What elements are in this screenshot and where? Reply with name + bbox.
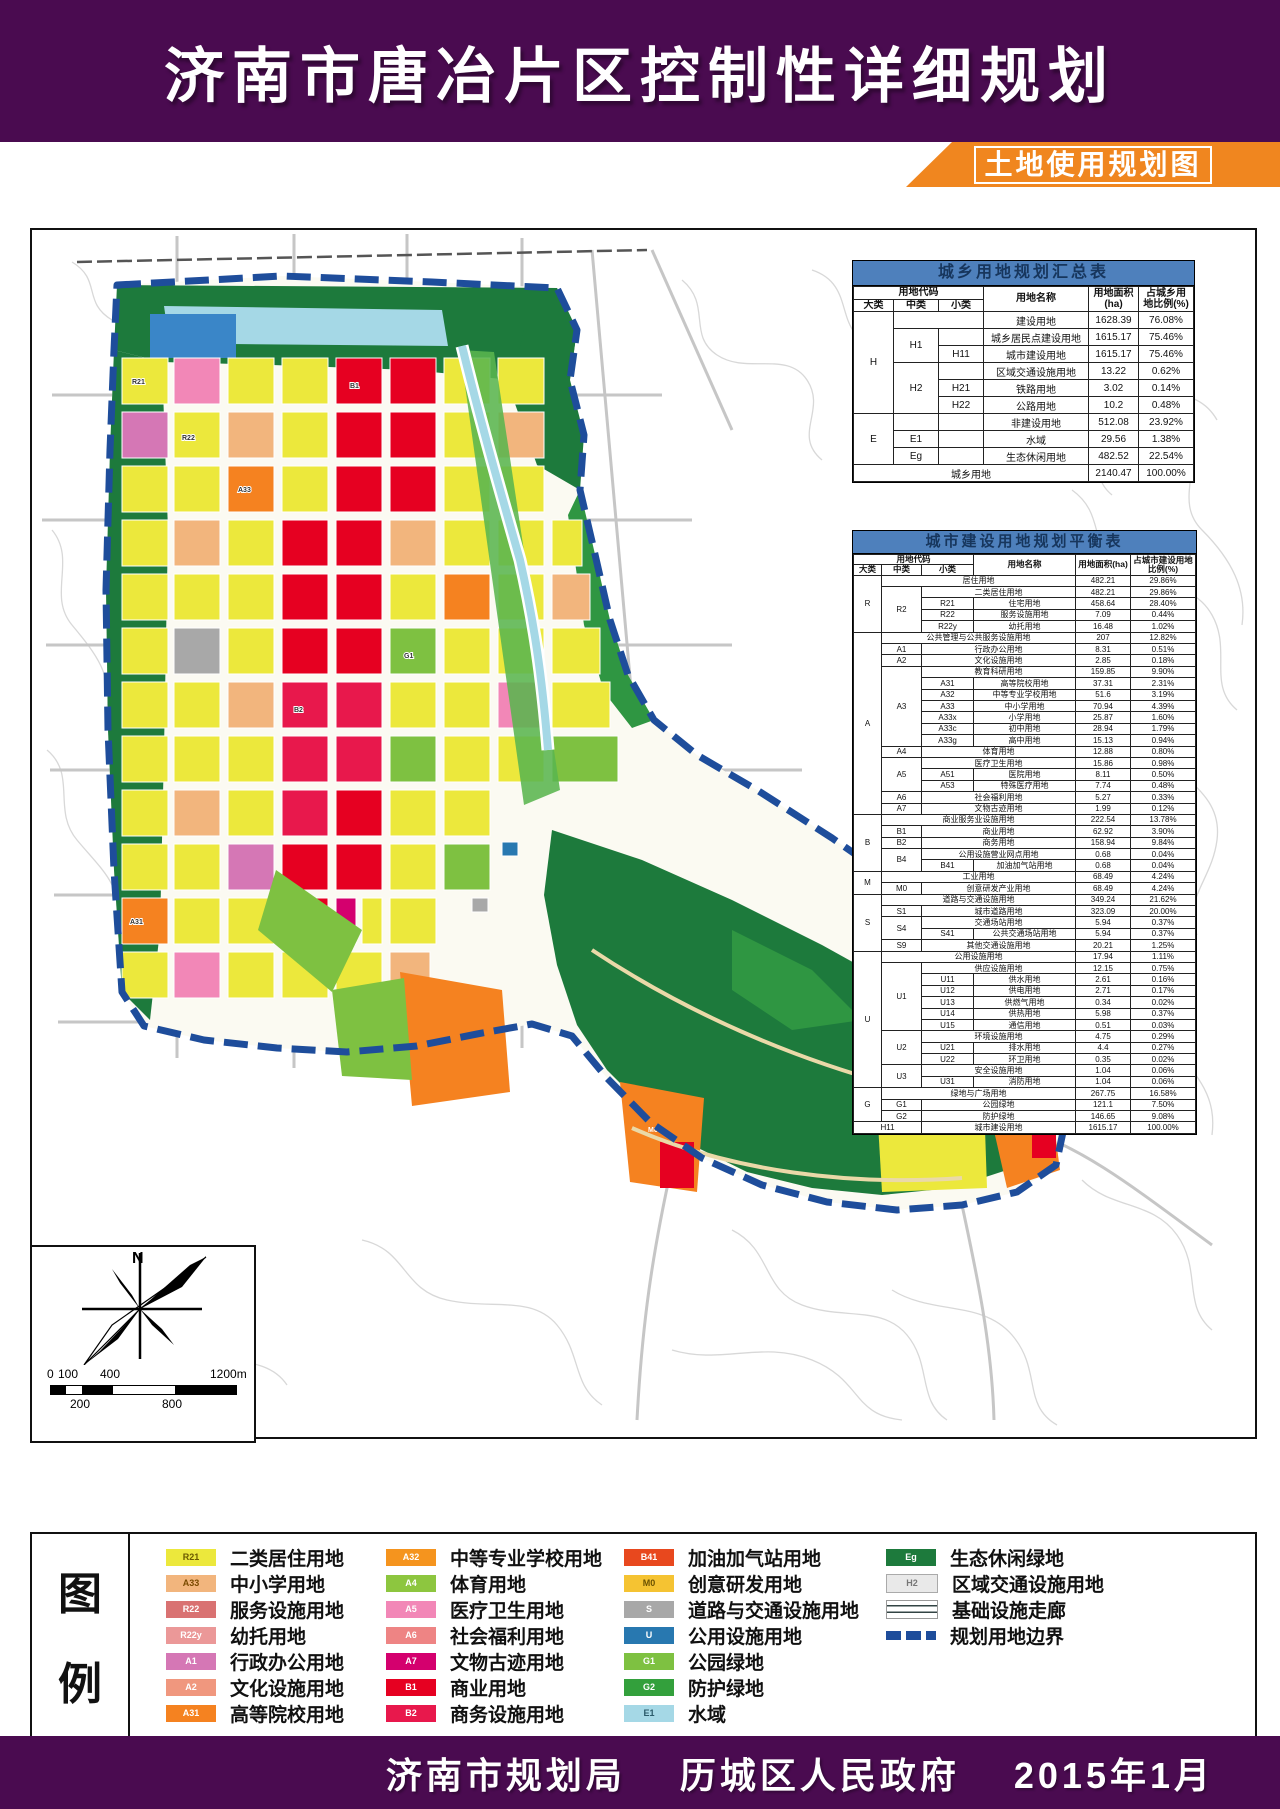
table-row: A2文化设施用地2.850.18% (854, 655, 1196, 666)
table-row: U2环境设施用地4.750.29% (854, 1031, 1196, 1042)
legend-item: H2区域交通设施用地 (886, 1572, 1186, 1594)
legend-item: A5医疗卫生用地 (386, 1598, 624, 1620)
table-row: G2防护绿地146.659.08% (854, 1111, 1196, 1122)
table-row: E1水域29.561.38% (854, 431, 1194, 448)
table-row: H1城乡居民点建设用地1615.1775.46% (854, 329, 1194, 346)
legend-label: 行政办公用地 (230, 1648, 344, 1675)
legend-label: 体育用地 (450, 1570, 526, 1597)
legend-item: A4体育用地 (386, 1572, 624, 1594)
legend-label: 商务设施用地 (450, 1700, 564, 1727)
legend-column: R21二类居住用地 A33中小学用地 R22服务设施用地 R22y幼托用地 A1… (166, 1546, 386, 1728)
legend-swatch: A33 (166, 1575, 216, 1592)
legend-item: R22y幼托用地 (166, 1624, 386, 1646)
legend-item: A32中等专业学校用地 (386, 1546, 624, 1568)
table-row: G1公园绿地121.17.50% (854, 1099, 1196, 1110)
legend-swatch: U (624, 1627, 674, 1644)
svg-text:N: N (132, 1250, 144, 1267)
table-row: 城乡用地2140.47100.00% (854, 465, 1194, 482)
legend-item: E1水域 (624, 1702, 886, 1724)
table-row: A7文物古迹用地1.990.12% (854, 803, 1196, 814)
legend-swatch: A2 (166, 1679, 216, 1696)
table-row: M0创意研发产业用地68.494.24% (854, 883, 1196, 894)
legend-swatch: A5 (386, 1601, 436, 1618)
table-row: R居住用地482.2129.86% (854, 575, 1196, 586)
table-row: G绿地与广场用地267.7516.58% (854, 1088, 1196, 1099)
legend-label: 加油加气站用地 (688, 1544, 821, 1571)
legend-label: 幼托用地 (230, 1622, 306, 1649)
svg-text:R22: R22 (182, 435, 195, 442)
legend-swatch: G2 (624, 1679, 674, 1696)
footer-banner: 济南市规划局 历城区人民政府 2015年1月 (0, 1736, 1280, 1809)
table-row: 用地代码 用地名称 用地面积(ha) 占城市建设用地比例(%) (854, 555, 1196, 565)
legend-label: 商业用地 (450, 1674, 526, 1701)
legend-swatch: R21 (166, 1549, 216, 1566)
svg-text:B2: B2 (294, 707, 303, 714)
table-row: M工业用地68.494.24% (854, 871, 1196, 882)
legend-swatch: R22 (166, 1601, 216, 1618)
legend-swatch: A7 (386, 1653, 436, 1670)
table-row: B商业服务业设施用地222.5413.78% (854, 814, 1196, 825)
legend-label: 生态休闲绿地 (950, 1544, 1064, 1571)
scale-tick-label: 400 (100, 1367, 120, 1381)
railway-line (77, 250, 647, 262)
legend-item: A31高等院校用地 (166, 1702, 386, 1724)
legend-item: A1行政办公用地 (166, 1650, 386, 1672)
legend-item: B41加油加气站用地 (624, 1546, 886, 1568)
svg-text:G1: G1 (404, 653, 413, 660)
legend-box: 图 例 R21二类居住用地 A33中小学用地 R22服务设施用地 R22y幼托用… (30, 1532, 1257, 1738)
page-title: 济南市唐冶片区控制性详细规划 (164, 28, 1116, 115)
legend-item: A33中小学用地 (166, 1572, 386, 1594)
legend-item: A7文物古迹用地 (386, 1650, 624, 1672)
legend-item: B1商业用地 (386, 1676, 624, 1698)
table-row: B4公用设施营业网点用地0.680.04% (854, 849, 1196, 860)
legend-column: B41加油加气站用地 M0创意研发用地 S道路与交通设施用地 U公用设施用地 G… (624, 1546, 886, 1728)
legend-item: U公用设施用地 (624, 1624, 886, 1646)
table-row: S9其他交通设施用地20.211.25% (854, 940, 1196, 951)
legend-label: 中小学用地 (230, 1570, 325, 1597)
legend-label: 服务设施用地 (230, 1596, 344, 1623)
legend-swatch: B1 (386, 1679, 436, 1696)
legend-item: Eg生态休闲绿地 (886, 1546, 1186, 1568)
north-arrow: N (32, 1247, 254, 1365)
legend-swatch: A6 (386, 1627, 436, 1644)
table-row: A6社会福利用地5.270.33% (854, 792, 1196, 803)
legend-label: 公用设施用地 (688, 1622, 802, 1649)
table-row: H建设用地1628.3976.08% (854, 312, 1194, 329)
summary-table: 城乡用地规划汇总表 用地代码 用地名称 用地面积 (ha) 占城乡用 地比例(%… (852, 260, 1195, 483)
legend-label: 创意研发用地 (688, 1570, 802, 1597)
legend-title: 图 例 (32, 1534, 130, 1736)
balance-table-title: 城市建设用地规划平衡表 (853, 531, 1196, 554)
scale-tick-label: 100 (58, 1367, 78, 1381)
svg-text:B1: B1 (350, 383, 359, 390)
balance-table: 城市建设用地规划平衡表 用地代码 用地名称 用地面积(ha) 占城市建设用地比例… (852, 530, 1197, 1135)
scale-tick-label: 800 (162, 1397, 182, 1411)
table-row: B2商务用地158.949.84% (854, 837, 1196, 848)
legend-label: 规划用地边界 (950, 1622, 1064, 1649)
table-row: U公用设施用地17.941.11% (854, 951, 1196, 962)
legend-label: 医疗卫生用地 (450, 1596, 564, 1623)
legend-label: 社会福利用地 (450, 1622, 564, 1649)
legend-item: 规划用地边界 (886, 1624, 1186, 1646)
scale-tick-label: 1200m (210, 1367, 247, 1381)
scale-tick-label: 200 (70, 1397, 90, 1411)
subtitle-ribbon: 土地使用规划图 (906, 142, 1280, 187)
table-row: Eg生态休闲用地482.5222.54% (854, 448, 1194, 465)
table-row: H11城市建设用地1615.17100.00% (854, 1122, 1196, 1133)
legend-item: 基础设施走廊 (886, 1598, 1186, 1620)
infrastructure-corridor-swatch (886, 1600, 938, 1619)
legend-label: 公园绿地 (688, 1648, 764, 1675)
legend-label: 道路与交通设施用地 (688, 1596, 859, 1623)
legend-label: 二类居住用地 (230, 1544, 344, 1571)
table-row: A3教育科研用地159.859.90% (854, 666, 1196, 677)
footer-text: 济南市规划局 历城区人民政府 2015年1月 (386, 1747, 1214, 1799)
legend-swatch: B2 (386, 1705, 436, 1722)
legend-label: 文化设施用地 (230, 1674, 344, 1701)
table-row: S1城市道路用地323.0920.00% (854, 906, 1196, 917)
legend-swatch: A31 (166, 1705, 216, 1722)
legend-swatch: B41 (624, 1549, 674, 1566)
legend-label: 高等院校用地 (230, 1700, 344, 1727)
planning-boundary-swatch (886, 1631, 936, 1640)
compass-box: N 0 100 400 1200m 200 800 (30, 1245, 256, 1443)
table-row: R2二类居住用地482.2129.86% (854, 587, 1196, 598)
legend-swatch: Eg (886, 1549, 936, 1566)
legend-item: G1公园绿地 (624, 1650, 886, 1672)
legend-item: A2文化设施用地 (166, 1676, 386, 1698)
table-row: B1商业用地62.923.90% (854, 826, 1196, 837)
summary-table-title: 城乡用地规划汇总表 (853, 261, 1194, 286)
svg-text:A31: A31 (130, 919, 143, 926)
legend-item: M0创意研发用地 (624, 1572, 886, 1594)
legend-swatch: S (624, 1601, 674, 1618)
legend-swatch: R22y (166, 1627, 216, 1644)
table-row: S道路与交通设施用地349.2421.62% (854, 894, 1196, 905)
legend-label: 防护绿地 (688, 1674, 764, 1701)
legend-label: 基础设施走廊 (952, 1596, 1066, 1623)
table-row: A4体育用地12.880.80% (854, 746, 1196, 757)
legend-swatch: M0 (624, 1575, 674, 1592)
legend-label: 水域 (688, 1700, 726, 1727)
table-row: E非建设用地512.0823.92% (854, 414, 1194, 431)
legend-swatch: A32 (386, 1549, 436, 1566)
table-row: A公共管理与公共服务设施用地20712.82% (854, 632, 1196, 643)
legend-label: 中等专业学校用地 (450, 1544, 602, 1571)
header-banner: 济南市唐冶片区控制性详细规划 (0, 0, 1280, 142)
legend-swatch: G1 (624, 1653, 674, 1670)
subtitle-label: 土地使用规划图 (974, 146, 1211, 184)
svg-text:A33: A33 (238, 487, 251, 494)
legend-column: A32中等专业学校用地 A4体育用地 A5医疗卫生用地 A6社会福利用地 A7文… (386, 1546, 624, 1728)
svg-text:R21: R21 (132, 379, 145, 386)
legend-swatch: A4 (386, 1575, 436, 1592)
table-row: A5医疗卫生用地15.860.98% (854, 757, 1196, 768)
scale-tick-label: 0 (47, 1367, 54, 1381)
table-row: U3安全设施用地1.040.06% (854, 1065, 1196, 1076)
legend-swatch: A1 (166, 1653, 216, 1670)
legend-column: Eg生态休闲绿地 H2区域交通设施用地 基础设施走廊 规划用地边界 (886, 1546, 1186, 1728)
legend-item: A6社会福利用地 (386, 1624, 624, 1646)
table-row: 用地代码 用地名称 用地面积 (ha) 占城乡用 地比例(%) (854, 287, 1194, 300)
scale-bar-segments (50, 1385, 237, 1395)
legend-item: R22服务设施用地 (166, 1598, 386, 1620)
legend-item: S道路与交通设施用地 (624, 1598, 886, 1620)
table-row: A1行政办公用地8.310.51% (854, 644, 1196, 655)
table-row: H2区域交通设施用地13.220.62% (854, 363, 1194, 380)
legend-label: 文物古迹用地 (450, 1648, 564, 1675)
legend-item: R21二类居住用地 (166, 1546, 386, 1568)
legend-item: G2防护绿地 (624, 1676, 886, 1698)
legend-swatch: H2 (886, 1574, 938, 1593)
legend-item: B2商务设施用地 (386, 1702, 624, 1724)
legend-swatch: E1 (624, 1705, 674, 1722)
legend-label: 区域交通设施用地 (952, 1570, 1104, 1597)
map-frame: R21 A33 B1 B2 G1 A31 R22 M0 城乡用地规划汇总表 用地… (30, 228, 1257, 1439)
table-row: U1供应设施用地12.150.75% (854, 962, 1196, 973)
table-row: S4交通场站用地5.940.37% (854, 917, 1196, 928)
